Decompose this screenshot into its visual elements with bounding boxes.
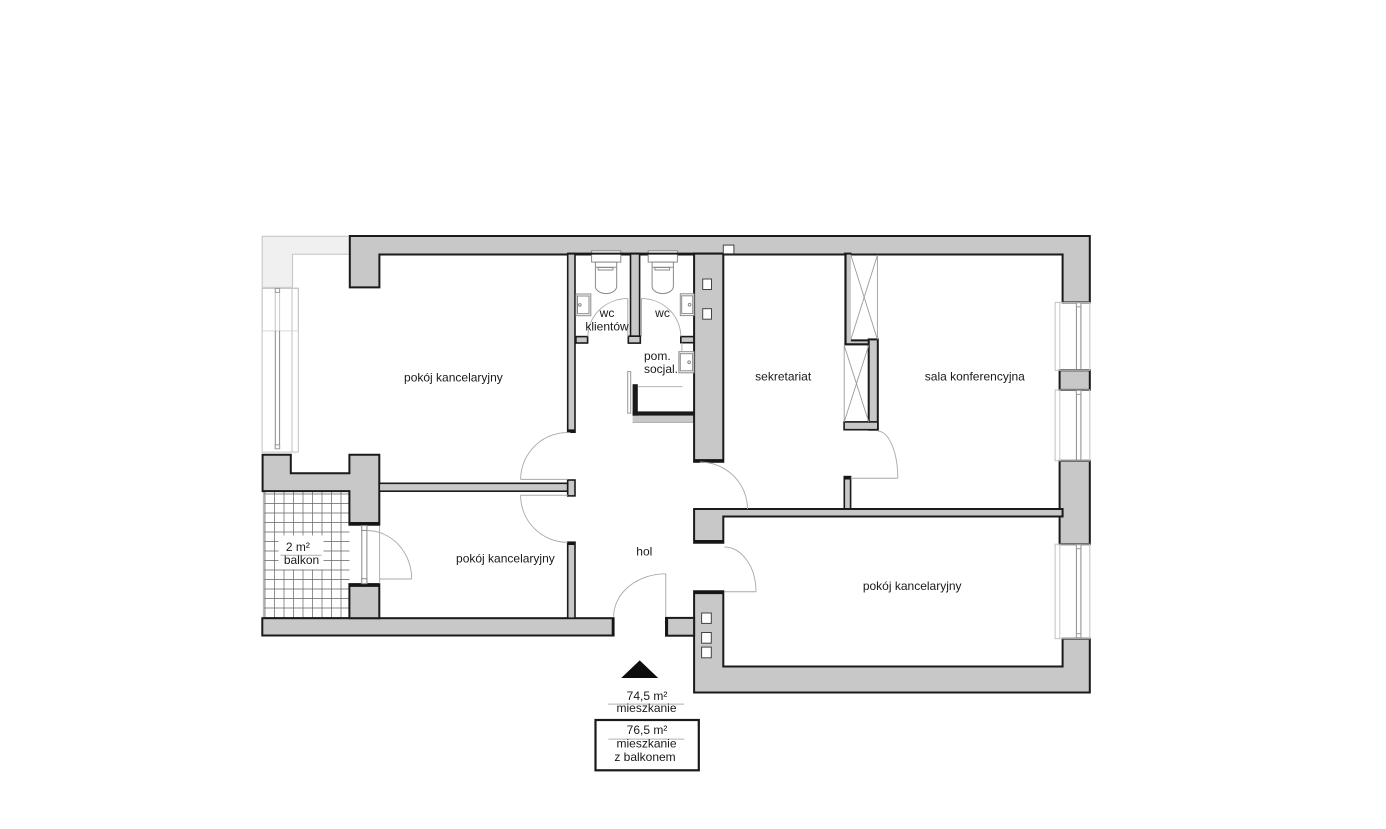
svg-text:mieszkanie: mieszkanie xyxy=(616,737,676,751)
svg-text:pokój kancelaryjny: pokój kancelaryjny xyxy=(456,552,555,566)
svg-text:mieszkanie: mieszkanie xyxy=(616,701,676,715)
svg-text:balkon: balkon xyxy=(284,553,319,567)
svg-text:sekretariat: sekretariat xyxy=(755,369,812,383)
svg-text:sala konferencyjna: sala konferencyjna xyxy=(925,369,1025,383)
svg-text:pokój kancelaryjny: pokój kancelaryjny xyxy=(863,579,962,593)
svg-text:2 m²: 2 m² xyxy=(286,540,310,554)
svg-text:klientów: klientów xyxy=(585,320,629,334)
svg-text:hol: hol xyxy=(636,544,652,558)
svg-text:wc: wc xyxy=(599,306,615,320)
svg-text:wc: wc xyxy=(654,306,670,320)
svg-text:76,5 m²: 76,5 m² xyxy=(627,723,668,737)
svg-text:z balkonem: z balkonem xyxy=(614,750,675,764)
svg-text:socjal.: socjal. xyxy=(644,362,678,376)
svg-text:pom.: pom. xyxy=(644,349,671,363)
svg-text:pokój kancelaryjny: pokój kancelaryjny xyxy=(404,371,503,385)
